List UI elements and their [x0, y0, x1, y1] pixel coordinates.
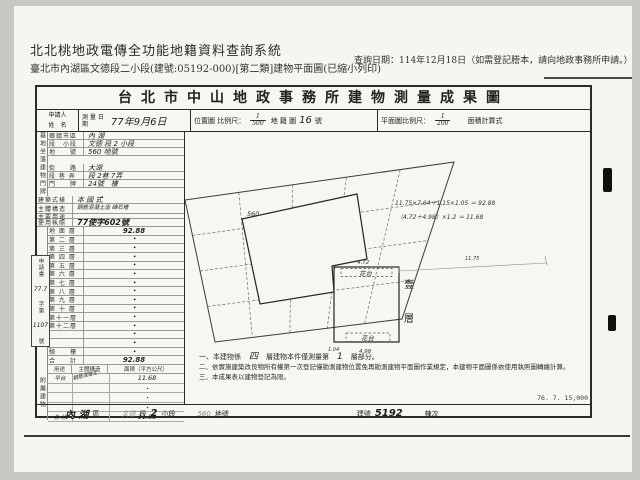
footer-row: 內 湖 區 文德 段 2 小段 560 地號 建號 5192 棟次 76. 7.…: [37, 404, 590, 422]
scanned-page: 北北桃地政電傳全功能地籍資料查詢系統 查詢日期：114年12月18日（如需登記謄…: [14, 6, 632, 472]
plan-scale-denominator: 200: [435, 120, 450, 127]
location-scale-label: 位置圖 比例尺：: [194, 116, 245, 126]
scan-edge-shadow-top-right: [544, 77, 632, 79]
dim-top: 4.72: [357, 260, 370, 266]
site-group-label: 基地坐落: [37, 132, 48, 164]
applicant-cell: 申請人 姓 名: [37, 110, 79, 131]
survey-date-cell: 測 量 日 期 77年9月6日: [79, 110, 191, 131]
query-subtitle: 臺北市內湖區文德段二小段(建號:05192-000)[第二類]建物平面圖(已縮小…: [30, 60, 381, 75]
location-scale-denominator: 500: [250, 120, 265, 127]
footer-unit-label: 棟次: [425, 409, 439, 419]
form-print-code: 76. 7. 15,000: [537, 394, 588, 402]
building-attributes-group: 建築式樣 本 國 式 主體構造 鋼筋混凝土造 磚石墻 主要用途 使用執照: [37, 196, 184, 227]
note-line-1: 一、本建物係四層建物本件僅測量第1層部分。: [199, 353, 589, 362]
query-system-title: 北北桃地政電傳全功能地籍資料查詢系統: [30, 40, 282, 59]
area-calc-label: 面積計算式: [467, 116, 502, 126]
applicant-label: 申請人: [48, 112, 66, 119]
dim-right: 11.75: [465, 256, 479, 262]
applicant-name-label: 姓 名: [48, 122, 66, 129]
lot-number-label: 560: [247, 210, 259, 218]
floor-label-char2: 層: [404, 313, 414, 325]
survey-date-value: 77年9月6日: [111, 113, 166, 128]
footer-section-value: 文德: [121, 409, 135, 419]
footer-lot-label: 地號: [215, 409, 229, 419]
screenshot-root: { "header": { "system_title": "北北桃地政電傳全功…: [0, 0, 640, 480]
plan-scale-label: 平面圖比例尺：: [381, 116, 430, 126]
cadastral-sheet-number: 16: [299, 115, 312, 126]
footer-subsection-value: 2: [150, 408, 157, 419]
cadastral-sheet-unit: 號: [315, 116, 322, 126]
plan-scale-fraction: 1 200: [435, 114, 450, 127]
info-row: 申請人 姓 名 測 量 日 期 77年9月6日 位置圖 比例尺： 1 500 地…: [37, 110, 590, 132]
plan-scale-cell: 平面圖比例尺： 1 200 面積計算式: [378, 110, 590, 131]
floor-plan-rect: [334, 267, 399, 342]
door-group-label: 建物門牌: [37, 164, 48, 196]
form-row: 門 牌 24號 樓: [48, 180, 184, 188]
application-number-box: 申請書 77.7 字第 1107 號: [31, 255, 50, 347]
footer-lot-value: 560: [197, 410, 210, 418]
survey-date-label: 測 量 日 期: [82, 114, 108, 128]
area-formula-2: （4.72＋4.98）×1.2 ＝ 11.68: [397, 213, 483, 221]
document-title: 台北市中山地政事務所建物測量成果圖: [37, 87, 590, 110]
building-area-group: 建物面積（平方公尺） 地 面 層 92.88 第 二 層 ・: [37, 227, 184, 365]
attached-table-header: 用途 主體構造 面積（平方公尺）: [48, 365, 184, 374]
location-scale-fraction: 1 500: [250, 114, 265, 127]
document-body: 基地坐落 鄉鎮市區 內 湖 段 小段 文德 段 2 小段: [37, 132, 590, 404]
form-row: 地 號 560 地號: [48, 148, 184, 156]
form-column: 基地坐落 鄉鎮市區 內 湖 段 小段 文德 段 2 小段: [37, 132, 185, 404]
flower-bed-bottom-label: 花台: [361, 335, 375, 343]
query-date: 查詢日期：114年12月18日（如需登記謄本，請向地政事務所申請。）: [354, 53, 632, 66]
style-row: 建築式樣 本 國 式: [37, 196, 184, 204]
flower-bed-top-label: 花台: [359, 270, 373, 278]
location-scale-cell: 位置圖 比例尺： 1 500 地 籍 圖 16 號: [191, 110, 378, 131]
floor-row: 合 計 92.88: [48, 356, 184, 365]
footer-district-label: 區: [92, 409, 99, 419]
scan-artifact-mark: [603, 168, 612, 192]
note-line-3: 三、本成果表以建物登記為限。: [199, 373, 589, 382]
cadastral-map-label: 地 籍 圖: [271, 116, 296, 126]
footer-building-number-value: 5192: [375, 408, 403, 419]
notes-block: 一、本建物係四層建物本件僅測量第1層部分。 二、依實施建築改良物所有權第一次登記…: [199, 353, 589, 382]
drawing-area: 560 11.75×7.64＋1.15×1.05 ＝ 92.88 （4.72＋4…: [185, 132, 590, 404]
scan-edge-shadow-bottom: [24, 435, 630, 437]
note-line-2: 二、依實施建築改良物所有權第一次登記僅勘測建物位置免再勘測建物平面圖作業規定，本…: [199, 363, 589, 371]
footer-district-value: 內 湖: [65, 406, 88, 421]
building-address-group: 建物門牌 街 路 大湖 段 巷 弄 段 2巷 7弄: [37, 164, 184, 196]
building-footprint-outline: [242, 194, 367, 304]
floor-label-char1: 壹: [404, 278, 414, 291]
footer-subsection-label: 小段: [161, 409, 175, 419]
survey-document: 台北市中山地政事務所建物測量成果圖 申請人 姓 名 測 量 日 期 77年9月6…: [35, 85, 592, 418]
footer-building-number-label: 建號: [357, 409, 371, 419]
scan-artifact-mark: [608, 315, 616, 331]
site-location-group: 基地坐落 鄉鎮市區 內 湖 段 小段 文德 段 2 小段: [37, 132, 184, 164]
footer-section-label: 段: [139, 409, 146, 419]
area-formula-1: 11.75×7.64＋1.15×1.05 ＝ 92.88: [395, 200, 495, 207]
